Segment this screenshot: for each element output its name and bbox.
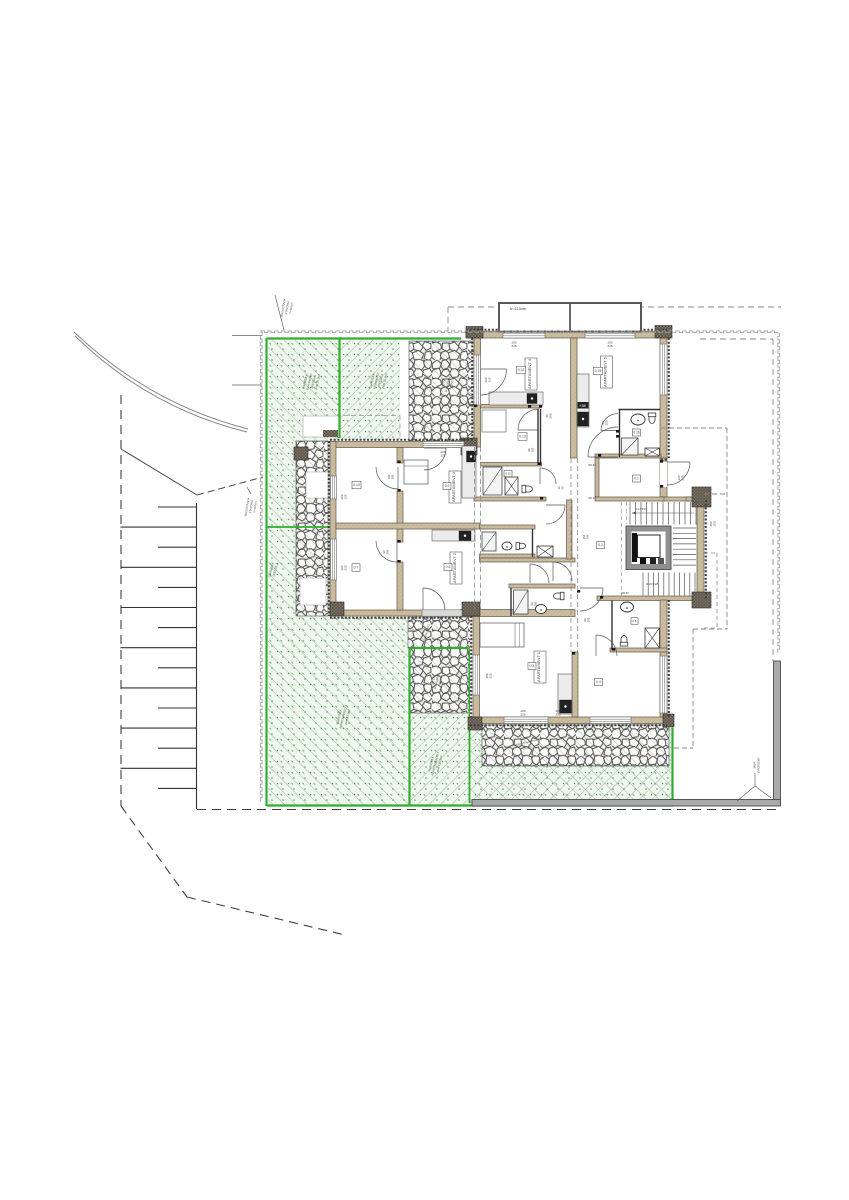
svg-text:0.12: 0.12 <box>518 368 525 372</box>
svg-text:225: 225 <box>471 401 475 406</box>
svg-text:225: 225 <box>520 712 525 716</box>
svg-text:100: 100 <box>712 521 716 526</box>
svg-text:0.11: 0.11 <box>505 472 511 476</box>
svg-text:200: 200 <box>604 420 608 425</box>
svg-text:APARTAMENT 2: APARTAMENT 2 <box>452 552 457 583</box>
svg-text:225: 225 <box>440 453 445 457</box>
svg-text:225: 225 <box>343 565 347 570</box>
svg-text:200: 200 <box>385 549 389 554</box>
svg-text:225: 225 <box>343 494 347 499</box>
svg-text:APARTAMENT 3: APARTAMENT 3 <box>451 471 456 502</box>
svg-text:APARTAMENT 5: APARTAMENT 5 <box>603 356 608 387</box>
svg-text:0.10: 0.10 <box>353 483 360 487</box>
svg-text:RD 60: RD 60 <box>588 463 596 467</box>
svg-text:200: 200 <box>585 534 589 539</box>
svg-text:30: 30 <box>560 486 564 489</box>
svg-text:200: 200 <box>586 617 590 622</box>
svg-text:90: 90 <box>527 448 531 451</box>
svg-text:0.1: 0.1 <box>634 477 639 481</box>
svg-text:150: 150 <box>387 474 391 479</box>
svg-text:0.2: 0.2 <box>598 543 603 547</box>
svg-text:0.4: 0.4 <box>596 680 601 684</box>
svg-text:200: 200 <box>530 447 534 452</box>
svg-text:APARTAMENT 4: APARTAMENT 4 <box>527 358 532 389</box>
svg-text:RD 60: RD 60 <box>621 591 629 595</box>
svg-text:225: 225 <box>488 673 492 678</box>
svg-text:0.9: 0.9 <box>445 484 450 488</box>
svg-text:200: 200 <box>468 401 472 406</box>
svg-text:200: 200 <box>533 601 537 606</box>
svg-text:200: 200 <box>548 413 552 418</box>
svg-text:90: 90 <box>583 618 587 621</box>
svg-text:+38: +38 <box>579 403 587 408</box>
svg-text:90: 90 <box>382 550 386 553</box>
svg-text:APARTAMENT 1: APARTAMENT 1 <box>536 651 541 682</box>
svg-text:9x16,5/28: 9x16,5/28 <box>646 582 659 586</box>
svg-text:0.5: 0.5 <box>632 619 637 623</box>
svg-text:150: 150 <box>582 534 586 539</box>
svg-text:0.3: 0.3 <box>530 664 535 668</box>
svg-text:225: 225 <box>487 377 491 382</box>
svg-text:0.6: 0.6 <box>446 565 451 569</box>
svg-text:10: 10 <box>557 486 561 489</box>
svg-text:7x17,5/29: 7x17,5/29 <box>635 507 648 511</box>
svg-text:0.13: 0.13 <box>519 435 526 439</box>
svg-text:RD 60: RD 60 <box>588 496 596 500</box>
svg-text:200: 200 <box>390 474 394 479</box>
svg-text:0.15: 0.15 <box>595 369 602 373</box>
svg-text:0.7: 0.7 <box>354 566 359 570</box>
svg-text:225: 225 <box>607 344 612 348</box>
svg-text:0.16: 0.16 <box>633 431 640 435</box>
svg-text:h=110cm: h=110cm <box>510 306 527 311</box>
svg-text:225: 225 <box>511 344 516 348</box>
svg-text:225: 225 <box>680 475 684 480</box>
svg-text:OPOROWY: OPOROWY <box>757 757 761 773</box>
svg-text:225: 225 <box>555 712 560 716</box>
svg-text:90: 90 <box>530 602 534 605</box>
